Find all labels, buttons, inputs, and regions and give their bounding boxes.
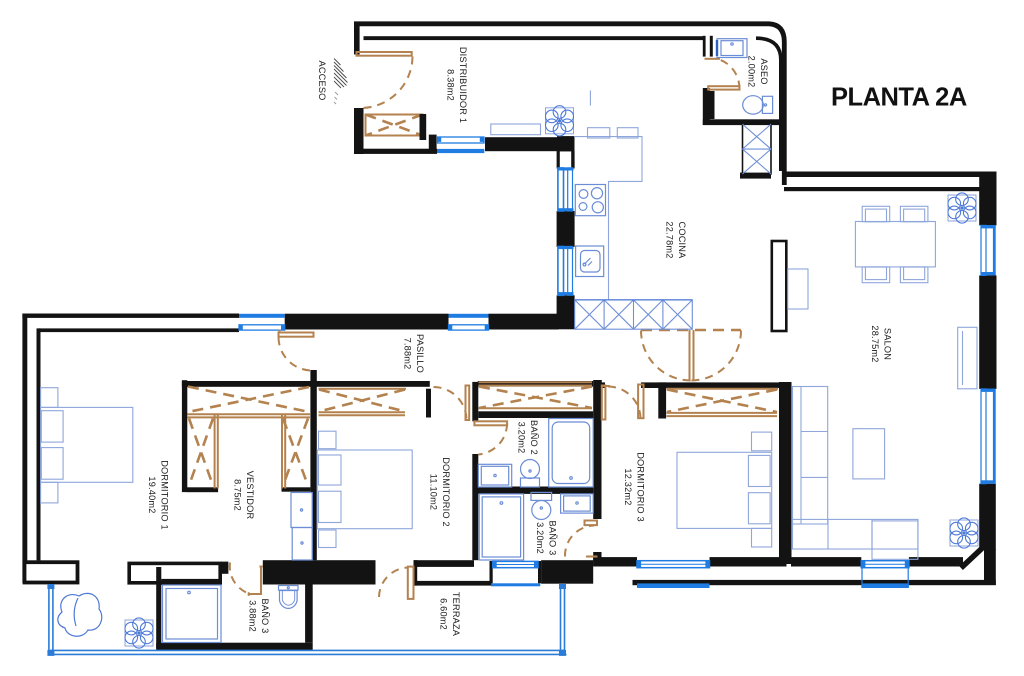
svg-text:PLANTA 2A: PLANTA 2A (831, 84, 967, 112)
svg-text:ACCESO: ACCESO (317, 60, 327, 100)
